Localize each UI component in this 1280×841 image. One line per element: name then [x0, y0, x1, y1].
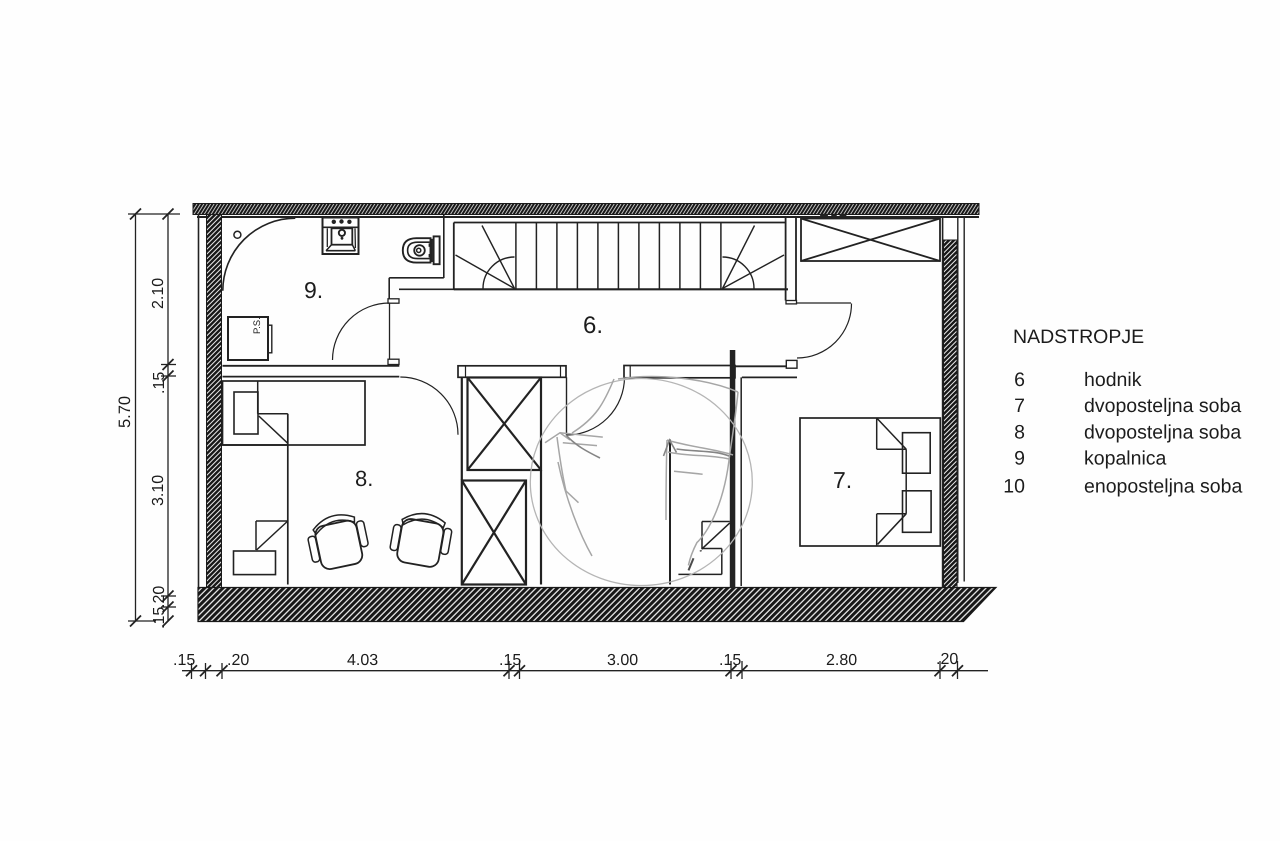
svg-text:.15: .15 [151, 372, 168, 394]
svg-text:.15: .15 [719, 652, 741, 669]
svg-text:hodnik: hodnik [1084, 369, 1142, 391]
svg-text:NADSTROPJE: NADSTROPJE [1013, 326, 1144, 348]
svg-text:P.S.: P.S. [252, 317, 263, 334]
svg-text:enoposteljna soba: enoposteljna soba [1084, 476, 1242, 498]
svg-text:9: 9 [1014, 448, 1025, 470]
svg-text:8.: 8. [355, 466, 373, 491]
svg-text:dvoposteljna soba: dvoposteljna soba [1084, 395, 1241, 417]
svg-text:10: 10 [1003, 476, 1025, 498]
svg-text:6: 6 [1014, 369, 1025, 391]
svg-text:.20: .20 [227, 652, 249, 669]
svg-text:7.: 7. [833, 467, 852, 493]
svg-text:8: 8 [1014, 421, 1025, 443]
svg-text:5.70: 5.70 [116, 396, 134, 428]
svg-text:dvoposteljna soba: dvoposteljna soba [1084, 421, 1241, 443]
svg-text:2.10: 2.10 [150, 278, 167, 309]
svg-text:.15: .15 [173, 652, 195, 669]
svg-text:2.80: 2.80 [826, 652, 857, 669]
svg-text:4.03: 4.03 [347, 652, 378, 669]
svg-text:3.10: 3.10 [150, 475, 167, 506]
svg-text:9.: 9. [304, 277, 323, 303]
svg-text:.20: .20 [936, 651, 958, 668]
svg-text:.20: .20 [151, 586, 168, 608]
svg-text:kopalnica: kopalnica [1084, 448, 1167, 470]
svg-text:3.00: 3.00 [607, 652, 638, 669]
svg-text:7: 7 [1014, 395, 1025, 417]
svg-text:.15: .15 [151, 607, 168, 629]
svg-text:6.: 6. [583, 312, 603, 339]
svg-text:.15: .15 [499, 652, 521, 669]
